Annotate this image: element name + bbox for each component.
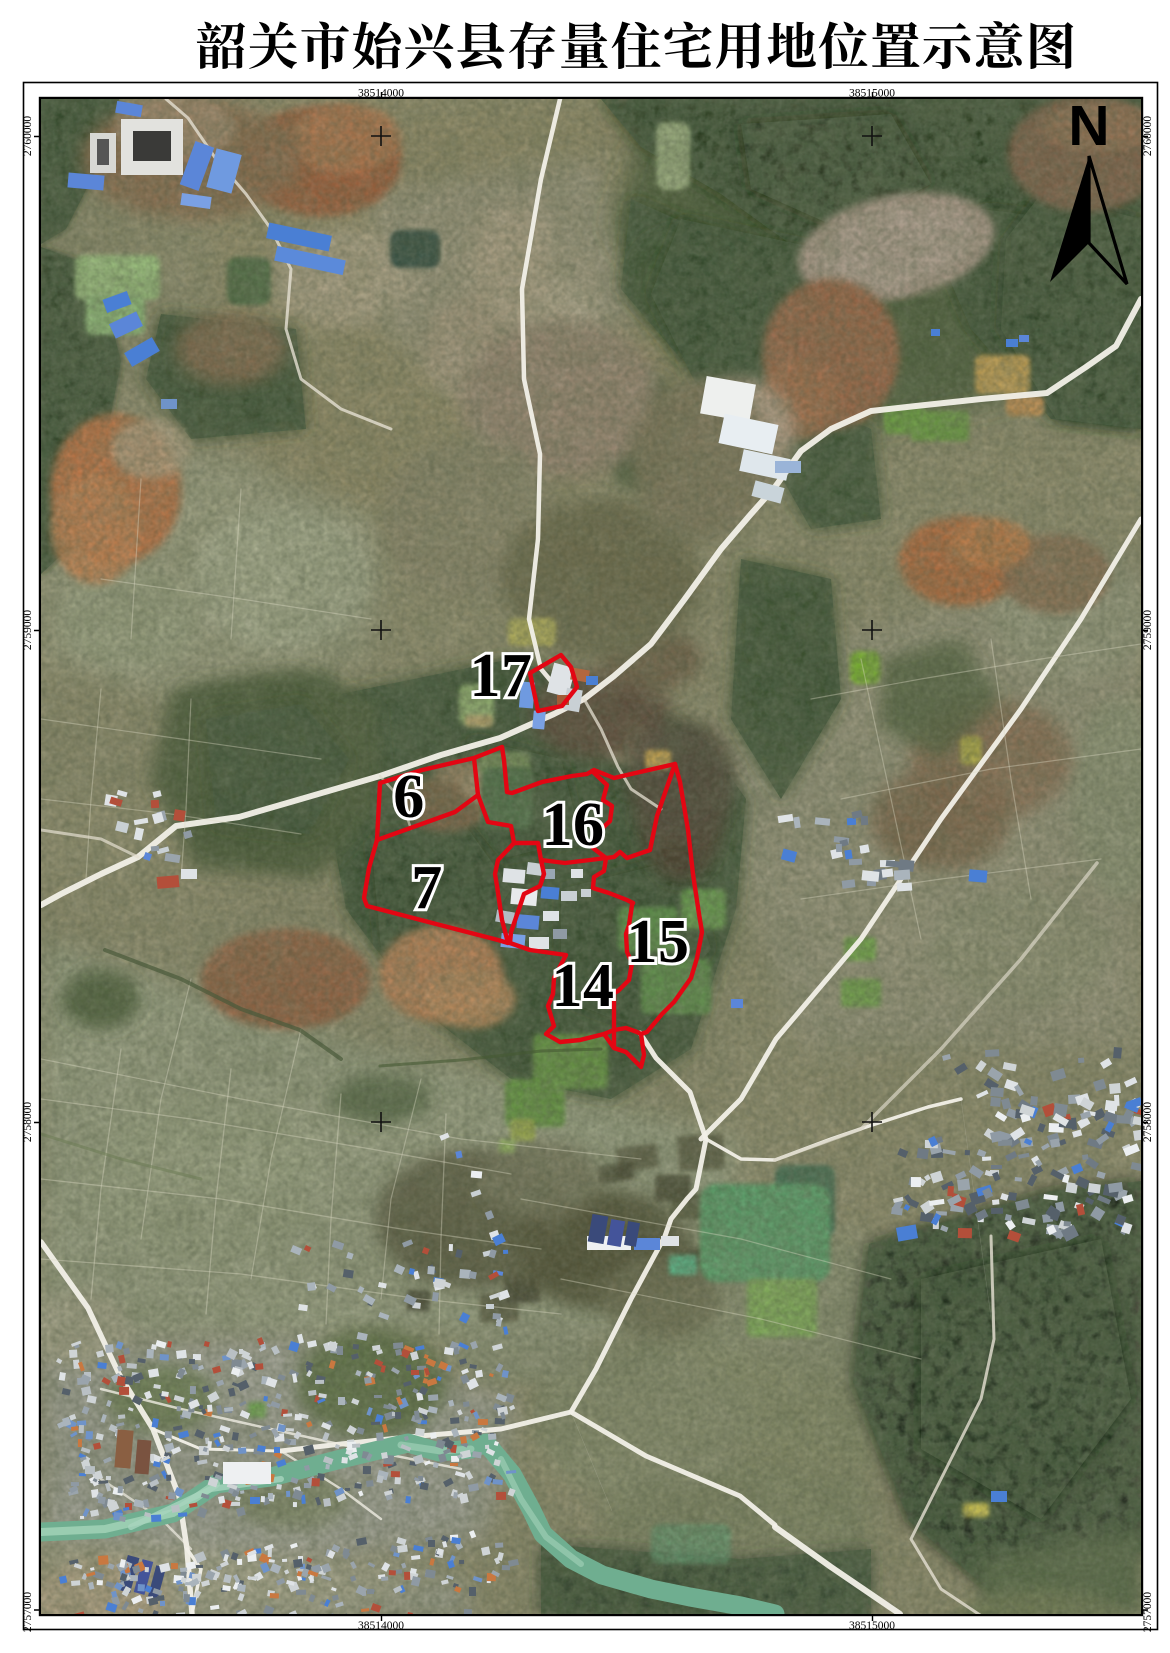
svg-text:2759000: 2759000: [1142, 610, 1154, 651]
svg-text:38514000: 38514000: [358, 88, 404, 100]
svg-text:2758000: 2758000: [22, 1102, 34, 1143]
svg-text:7: 7: [411, 854, 443, 922]
svg-text:14: 14: [552, 952, 615, 1020]
svg-text:15: 15: [627, 908, 690, 976]
svg-text:2759000: 2759000: [22, 610, 34, 651]
svg-text:2760000: 2760000: [1142, 116, 1154, 157]
svg-text:2757000: 2757000: [1142, 1592, 1154, 1633]
svg-text:2760000: 2760000: [22, 116, 34, 157]
svg-text:16: 16: [542, 791, 605, 859]
svg-text:17: 17: [470, 642, 533, 710]
svg-text:38515000: 38515000: [849, 1620, 895, 1632]
svg-text:2758000: 2758000: [1142, 1102, 1154, 1143]
svg-text:38514000: 38514000: [358, 1620, 404, 1632]
svg-text:6: 6: [393, 763, 425, 831]
svg-text:2757000: 2757000: [22, 1592, 34, 1633]
svg-text:38515000: 38515000: [849, 88, 895, 100]
svg-text:N: N: [1068, 94, 1109, 158]
